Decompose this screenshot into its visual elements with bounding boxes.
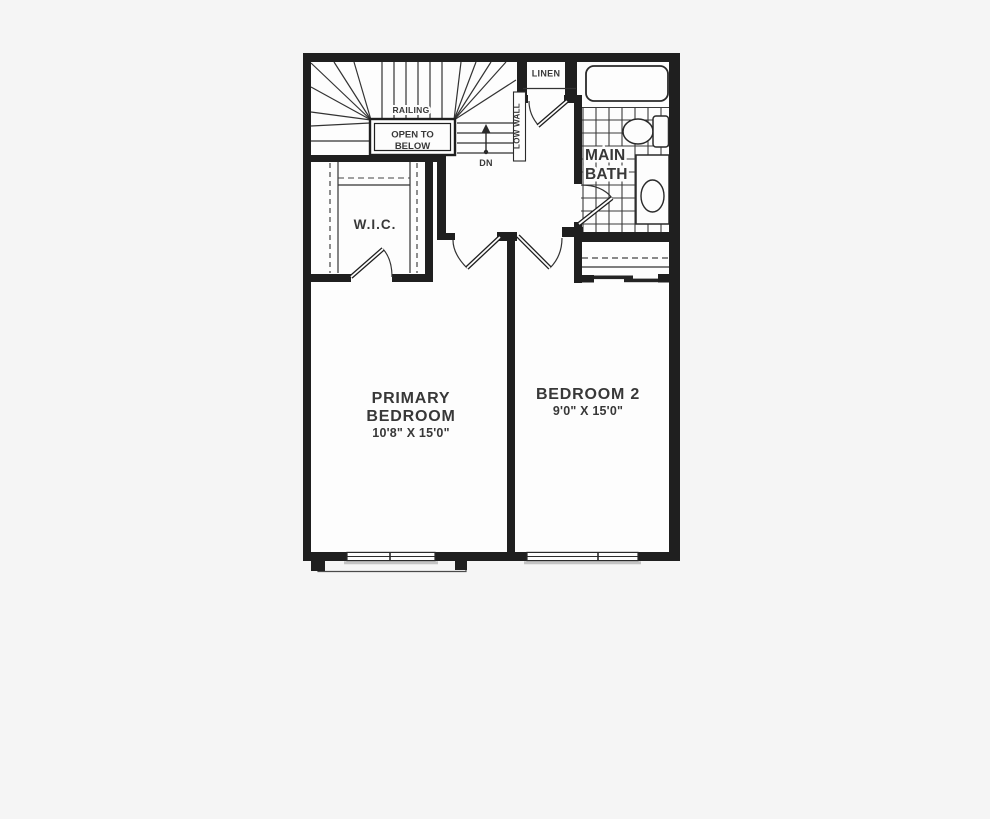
primary-bedroom-label: PRIMARY BEDROOM 10'8" X 15'0" [366,390,455,440]
vanity-sink [636,155,669,224]
wall-bedroom-divider [507,241,515,552]
bedroom2-dimensions: 9'0" X 15'0" [553,404,623,418]
primary-bedroom-name-line2: BEDROOM [366,408,455,425]
wall-exterior-top [303,53,680,62]
primary-bedroom-dimensions: 10'8" X 15'0" [372,426,449,440]
floor-plan-page: RAILING OPEN TO BELOW DN LOW WALL LINEN … [0,0,990,819]
primary-bedroom-name-line1: PRIMARY [372,390,451,407]
bedroom2-window [527,552,638,560]
wall-exterior-bottom [435,552,527,561]
bedroom2-name: BEDROOM 2 [536,386,640,403]
bathtub [586,66,668,101]
wall-exterior-left [303,53,311,561]
down-label: DN [479,158,493,168]
toilet [623,116,669,147]
wall-exterior-bottom [303,552,347,561]
floor-plan-drawing: RAILING OPEN TO BELOW DN LOW WALL LINEN … [0,0,990,819]
wall-exterior-bottom [638,552,680,561]
wall-wic-bottom [392,274,433,282]
bypass-door-panel [592,276,633,280]
wall-wic-right [425,162,433,282]
bypass-door-panel [624,279,661,283]
linen-label: LINEN [532,69,561,79]
open-to-below-label-line1: OPEN TO [391,130,434,141]
window-bay-outline [318,561,641,572]
low-wall-label: LOW WALL [513,103,522,149]
primary-bedroom-window [347,552,435,560]
wic-label: W.I.C. [354,217,397,232]
wall-wic-bottom [303,274,351,282]
wall-exterior-right [669,53,680,561]
main-bath-label-line1: MAIN [585,147,625,164]
open-to-below-label-line2: BELOW [395,141,430,152]
railing-label: RAILING [392,105,429,115]
main-bath-label-line2: BATH [585,166,628,183]
